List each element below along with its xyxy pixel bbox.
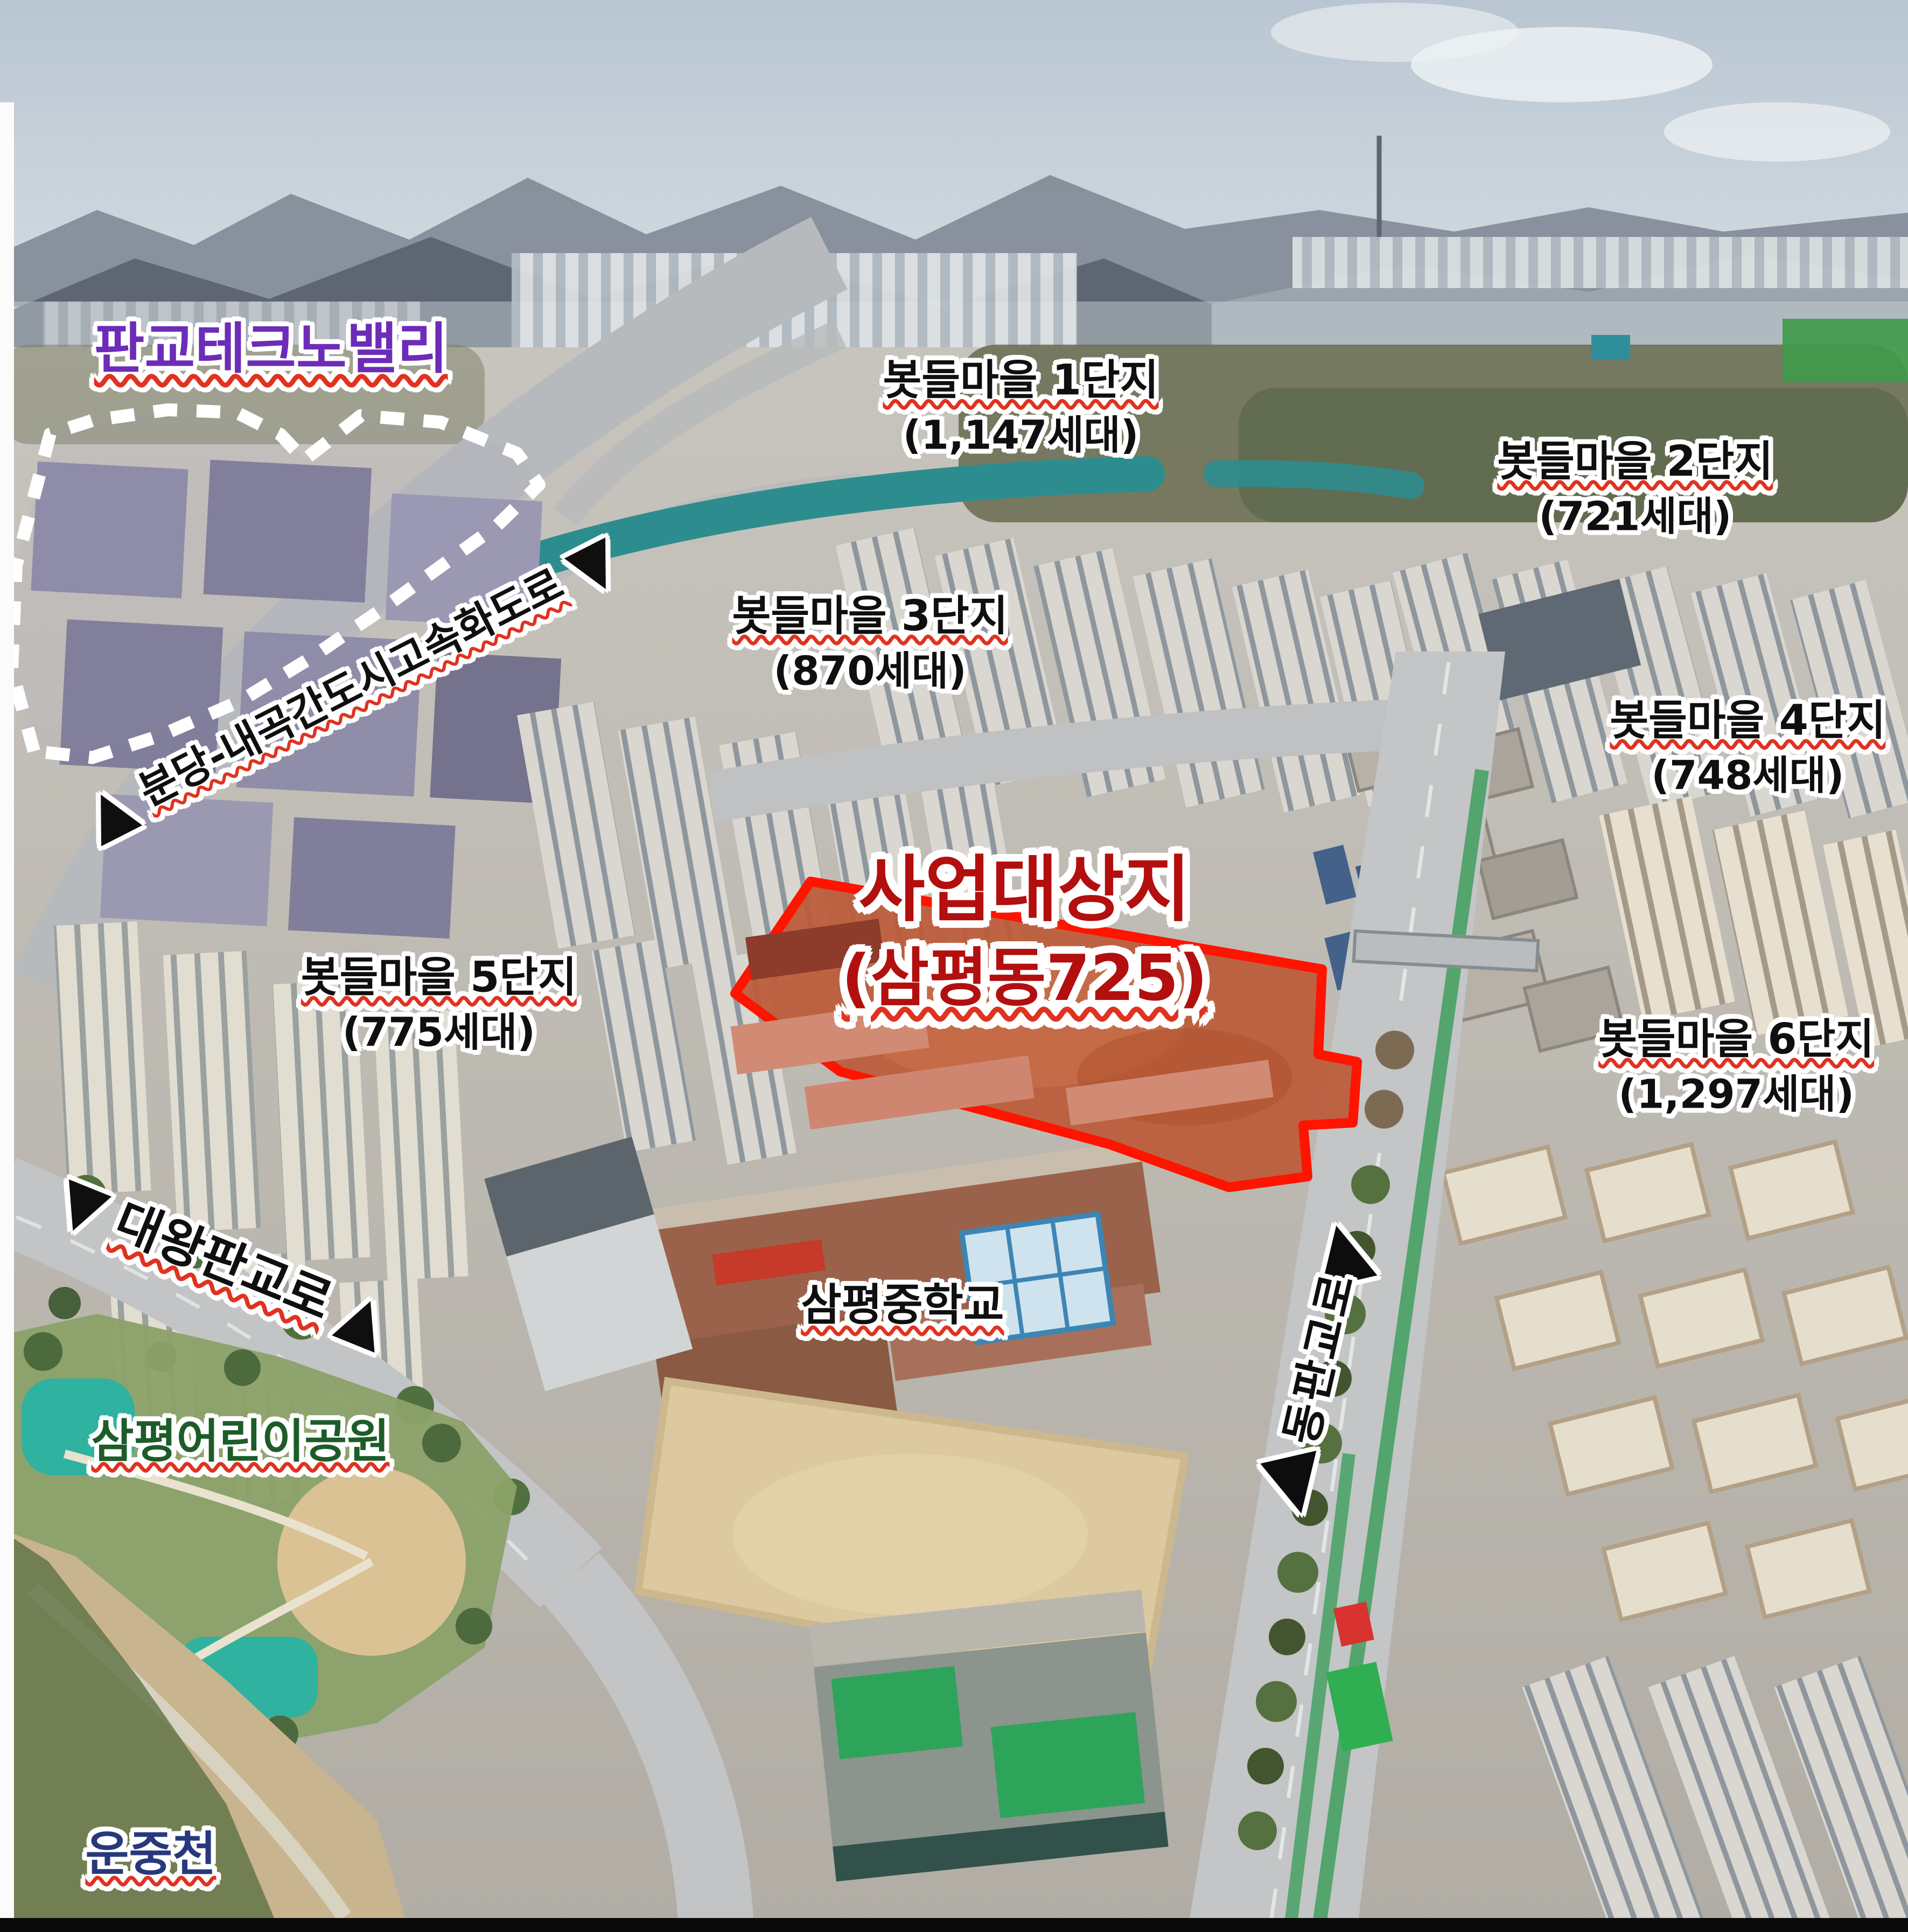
- label-complex-6: 봇들마을 6단지 (1,297세대): [1598, 1011, 1874, 1122]
- complex-households: (775세대): [343, 1006, 535, 1060]
- site-address: (삼평동725): [842, 937, 1208, 1019]
- park-name: 삼평어린이공원: [91, 1410, 389, 1473]
- complex-households: (1,297세대): [1618, 1068, 1854, 1122]
- sports-field: [1783, 319, 1908, 382]
- label-school: 삼평중학교: [801, 1276, 1004, 1336]
- complex-households: (721세대): [1539, 490, 1731, 544]
- complex-name: 봇들마을 5단지: [301, 949, 577, 1006]
- complex-name: 봇들마을 6단지: [1598, 1011, 1874, 1068]
- complex-name: 봇들마을 4단지: [1610, 692, 1885, 749]
- school-name: 삼평중학교: [801, 1276, 1004, 1336]
- field-center: [732, 1454, 1088, 1615]
- label-complex-5: 봇들마을 5단지 (775세대): [301, 949, 577, 1060]
- complex-households: (870세대): [773, 645, 966, 699]
- label-stream: 운중천: [85, 1823, 216, 1887]
- label-pangyo-techno-valley: 판교테크노밸리: [94, 313, 448, 387]
- label-complex-4: 봇들마을 4단지 (748세대): [1610, 692, 1885, 803]
- complex-name: 봇들마을 2단지: [1497, 433, 1773, 490]
- complex-households: (1,147세대): [903, 409, 1139, 463]
- techno-valley-name: 판교테크노밸리: [94, 313, 448, 387]
- label-complex-1: 봇들마을 1단지 (1,147세대): [883, 352, 1159, 463]
- pond: [1591, 335, 1630, 360]
- stream-name: 운중천: [85, 1823, 216, 1887]
- complex-name: 봇들마을 3단지: [732, 588, 1008, 645]
- site-title: 사업대상지: [858, 843, 1190, 937]
- label-complex-2: 봇들마을 2단지 (721세대): [1497, 433, 1773, 544]
- complex-name: 봇들마을 1단지: [883, 352, 1159, 409]
- aerial-map: 판교테크노밸리 ▲ 분당-내곡간도시고속화도로 ▼ 봇들마을 1단지 (1,14…: [0, 0, 1908, 1932]
- label-complex-3: 봇들마을 3단지 (870세대): [732, 588, 1008, 698]
- bottom-black-bar: [0, 1918, 1908, 1932]
- label-park: 삼평어린이공원: [91, 1410, 389, 1473]
- left-edge-strip: [0, 102, 14, 1920]
- complex-households: (748세대): [1651, 749, 1844, 803]
- green-roof-building: [809, 1590, 1169, 1881]
- label-project-site: 사업대상지 (삼평동725): [842, 843, 1208, 1020]
